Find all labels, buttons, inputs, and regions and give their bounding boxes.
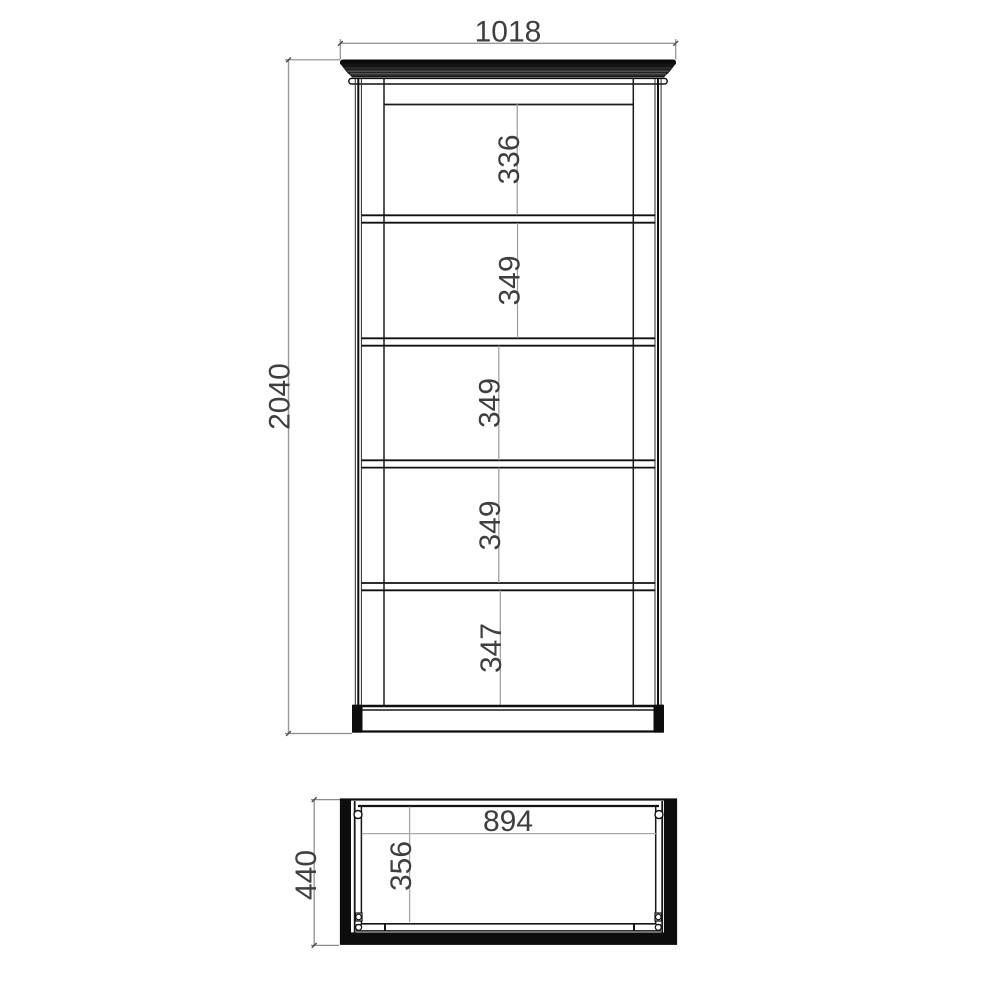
svg-text:894: 894 xyxy=(483,805,533,838)
svg-text:440: 440 xyxy=(290,850,323,900)
svg-text:349: 349 xyxy=(494,255,527,305)
svg-text:356: 356 xyxy=(385,841,418,891)
svg-text:347: 347 xyxy=(475,623,508,673)
svg-text:349: 349 xyxy=(474,378,507,428)
svg-text:336: 336 xyxy=(493,134,526,184)
svg-text:349: 349 xyxy=(474,500,507,550)
svg-text:2040: 2040 xyxy=(263,363,296,430)
svg-text:1018: 1018 xyxy=(475,16,542,49)
